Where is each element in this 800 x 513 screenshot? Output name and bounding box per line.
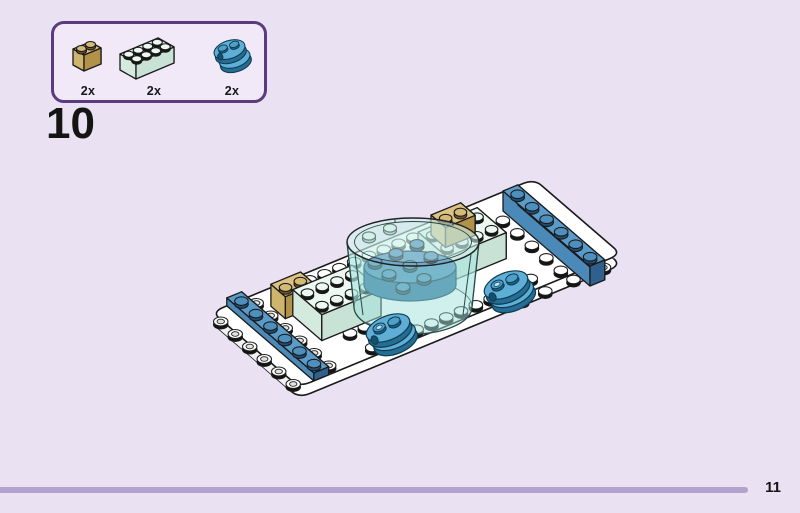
page-number: 11 (765, 479, 781, 496)
part-qty-label: 2x (114, 84, 194, 98)
instruction-page: 2x 2x 2x 10 (0, 0, 800, 513)
part-qty-label: 2x (200, 84, 264, 98)
azure-round-plates-icon (206, 30, 258, 80)
footer-divider (0, 487, 748, 493)
part-qty-label: 2x (58, 84, 118, 98)
assembly-illustration (185, 155, 655, 435)
mint-brick-icon (112, 30, 196, 80)
part-item-mint-brick: 2x (114, 28, 194, 100)
parts-callout-box: 2x 2x 2x (51, 21, 267, 103)
transparent-tub-front-wall (347, 218, 479, 334)
part-item-azure-stack: 2x (200, 28, 264, 100)
part-item-tan-log-brick: 2x (58, 28, 118, 100)
step-number: 10 (46, 102, 95, 146)
tan-log-brick-icon (60, 30, 116, 80)
